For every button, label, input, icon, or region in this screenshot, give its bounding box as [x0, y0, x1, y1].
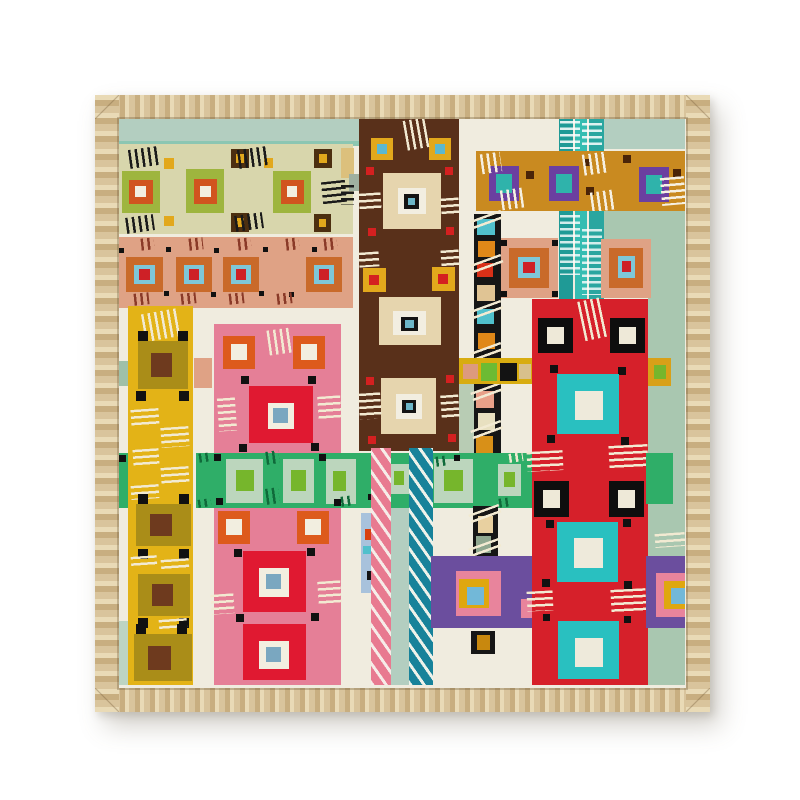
frame-right-rail	[686, 95, 710, 712]
right-sage-items-shape	[655, 532, 686, 548]
frame-miter-top-right	[686, 95, 710, 119]
frame-miter-bottom-right	[686, 688, 710, 712]
frame-miter-top-left	[95, 95, 119, 119]
product-photo	[0, 0, 800, 800]
right-sage-items-shape	[646, 453, 673, 504]
artwork-canvas	[119, 119, 686, 688]
frame-top-rail	[95, 95, 710, 119]
frame-bottom-rail	[95, 688, 710, 712]
right-sage-items-shape	[671, 588, 685, 604]
picture-frame	[95, 95, 710, 712]
right-sage-items-shape	[654, 365, 666, 379]
right-sage-items	[119, 119, 686, 688]
frame-miter-bottom-left	[95, 688, 119, 712]
frame-left-rail	[95, 95, 119, 712]
